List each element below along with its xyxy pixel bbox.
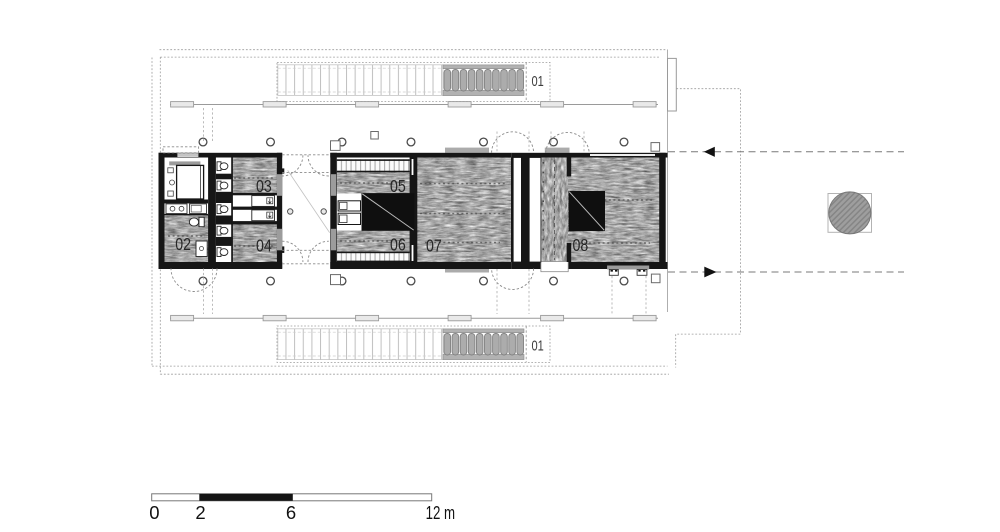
svg-text:6: 6: [286, 502, 296, 523]
svg-text:05: 05: [390, 176, 406, 196]
svg-text:01: 01: [532, 74, 544, 90]
svg-text:01: 01: [532, 339, 544, 355]
svg-text:12 m: 12 m: [426, 502, 456, 523]
svg-text:0: 0: [149, 502, 159, 523]
svg-text:02: 02: [175, 234, 191, 254]
svg-text:2: 2: [195, 502, 205, 523]
svg-text:08: 08: [573, 235, 589, 255]
svg-text:04: 04: [256, 236, 272, 256]
svg-text:07: 07: [426, 235, 442, 255]
svg-text:06: 06: [390, 234, 406, 254]
svg-text:03: 03: [256, 176, 272, 196]
